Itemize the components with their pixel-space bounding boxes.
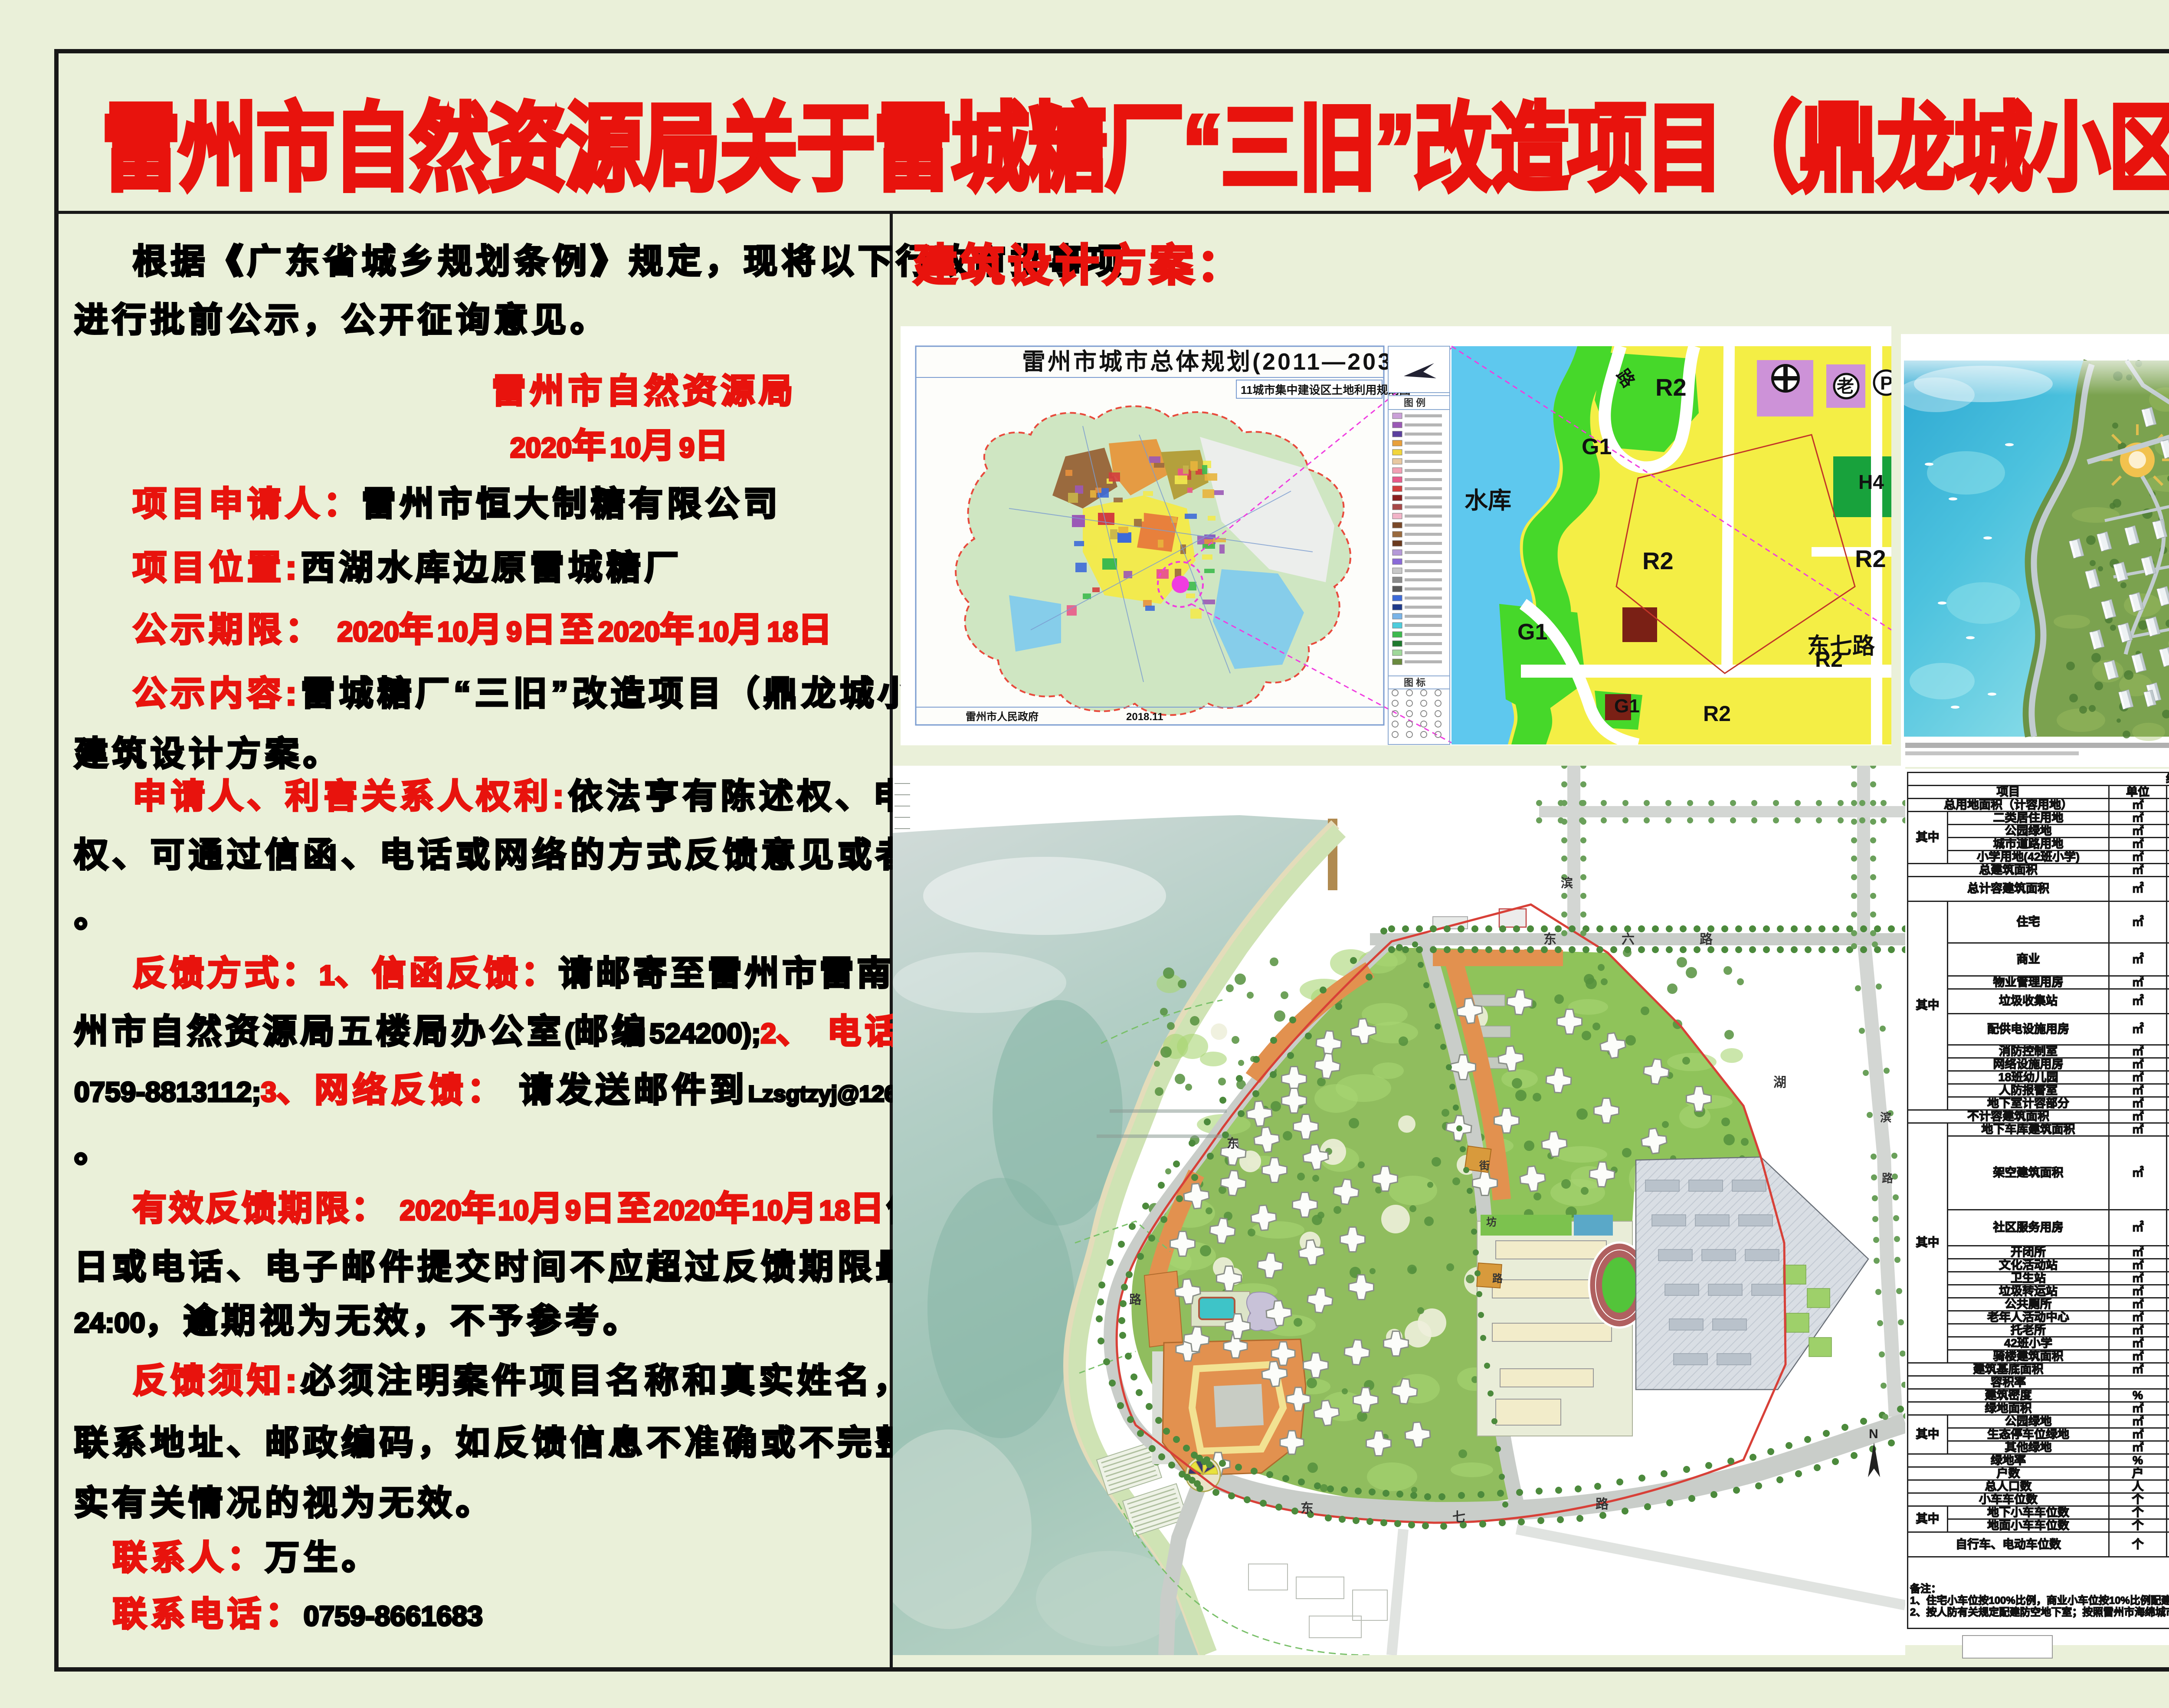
svg-text:R2: R2 xyxy=(1855,545,1886,572)
svg-text:七: 七 xyxy=(1452,1510,1465,1524)
svg-text:N: N xyxy=(1869,1427,1878,1441)
svg-text:坊: 坊 xyxy=(1486,1216,1497,1228)
svg-text:雷州市人民政府: 雷州市人民政府 xyxy=(966,711,1039,723)
svg-text:2018.11: 2018.11 xyxy=(1126,711,1163,723)
svg-text:路: 路 xyxy=(1596,1497,1609,1511)
svg-text:东: 东 xyxy=(1227,1136,1239,1150)
svg-text:图 标: 图 标 xyxy=(1404,677,1425,688)
svg-text:11城市集中建设区土地利用规划图: 11城市集中建设区土地利用规划图 xyxy=(1241,384,1411,397)
svg-text:G1: G1 xyxy=(1517,620,1547,645)
svg-text:路: 路 xyxy=(1882,1172,1894,1185)
svg-text:滨: 滨 xyxy=(1880,1111,1891,1124)
svg-text:水库: 水库 xyxy=(1465,488,1511,514)
svg-text:路: 路 xyxy=(1129,1293,1142,1306)
svg-text:东: 东 xyxy=(1301,1501,1314,1516)
svg-text:G1: G1 xyxy=(1614,695,1640,717)
svg-text:G1: G1 xyxy=(1582,434,1612,459)
svg-text:R2: R2 xyxy=(1703,702,1731,726)
svg-text:路: 路 xyxy=(1492,1272,1503,1285)
svg-text:老: 老 xyxy=(1837,377,1854,396)
svg-text:图 例: 图 例 xyxy=(1404,397,1425,408)
svg-text:P: P xyxy=(1880,373,1891,394)
svg-text:雷州市城市总体规划(2011—2035): 雷州市城市总体规划(2011—2035) xyxy=(1022,349,1418,375)
svg-text:R2: R2 xyxy=(1642,547,1674,574)
svg-text:路: 路 xyxy=(1700,932,1713,947)
svg-text:六: 六 xyxy=(1622,932,1635,947)
svg-text:滨: 滨 xyxy=(1561,876,1573,890)
svg-text:东: 东 xyxy=(1543,932,1556,947)
svg-text:街: 街 xyxy=(1479,1160,1490,1172)
svg-text:东七路: 东七路 xyxy=(1807,634,1875,659)
svg-text:H4: H4 xyxy=(1858,471,1884,493)
svg-text:湖: 湖 xyxy=(1773,1075,1786,1090)
svg-text:R2: R2 xyxy=(1655,374,1687,401)
